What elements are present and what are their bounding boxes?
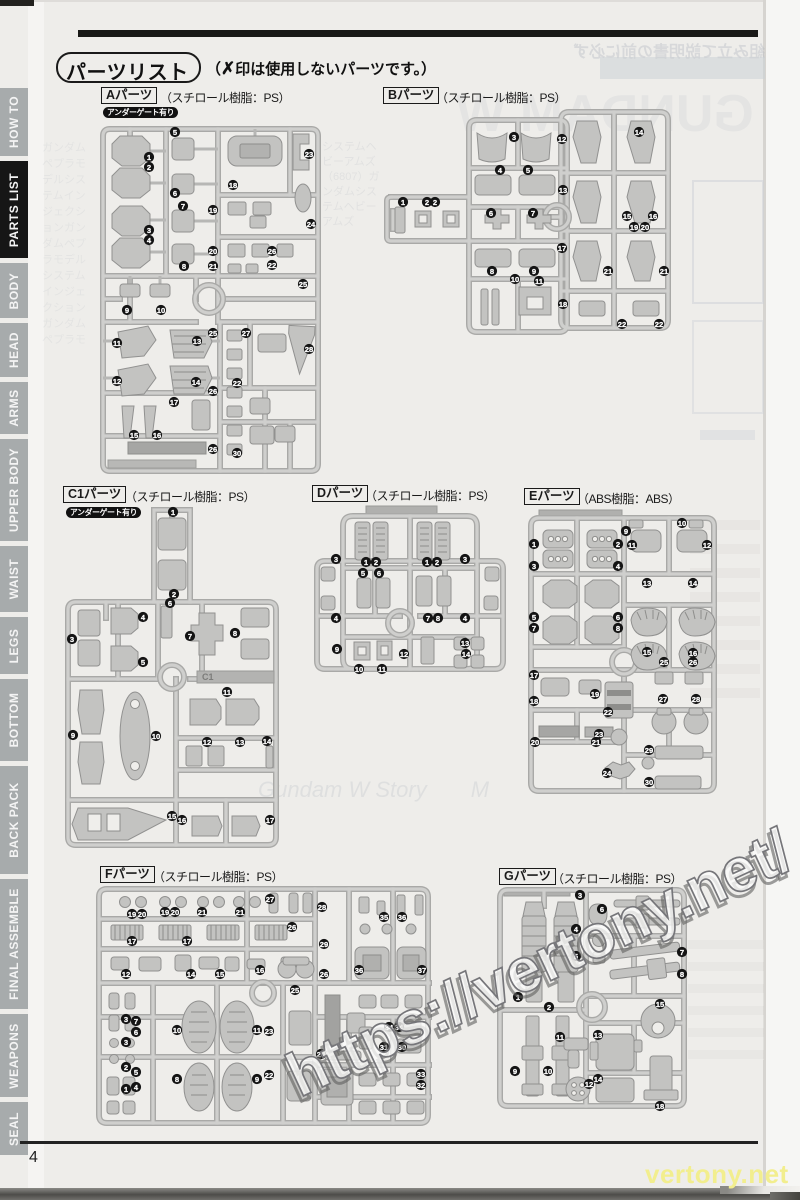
svg-text:21: 21 — [592, 738, 601, 747]
svg-text:32: 32 — [417, 1081, 425, 1090]
svg-text:2: 2 — [172, 590, 176, 599]
svg-text:7: 7 — [532, 624, 536, 633]
svg-text:17: 17 — [266, 816, 274, 825]
svg-text:12: 12 — [558, 135, 566, 144]
svg-text:26: 26 — [268, 247, 276, 256]
svg-text:13: 13 — [193, 337, 201, 346]
svg-text:12: 12 — [113, 377, 121, 386]
svg-text:11: 11 — [556, 1033, 565, 1042]
svg-text:26: 26 — [209, 387, 217, 396]
svg-text:24: 24 — [307, 220, 316, 229]
svg-text:6: 6 — [377, 569, 381, 578]
svg-text:9: 9 — [624, 527, 628, 536]
svg-text:11: 11 — [223, 688, 232, 697]
svg-text:11: 11 — [628, 541, 637, 550]
svg-text:26: 26 — [320, 970, 328, 979]
svg-text:6: 6 — [616, 613, 620, 622]
svg-text:19: 19 — [128, 910, 136, 919]
svg-text:15: 15 — [656, 1000, 665, 1009]
svg-text:14: 14 — [263, 737, 272, 746]
svg-text:9: 9 — [125, 306, 129, 315]
svg-text:7: 7 — [531, 209, 535, 218]
svg-text:36: 36 — [355, 966, 363, 975]
svg-text:3: 3 — [532, 562, 536, 571]
svg-text:33: 33 — [417, 1070, 425, 1079]
svg-text:2: 2 — [147, 163, 151, 172]
svg-text:3: 3 — [124, 1015, 128, 1024]
svg-text:21: 21 — [198, 908, 207, 917]
svg-text:16: 16 — [153, 431, 161, 440]
svg-text:16: 16 — [178, 816, 186, 825]
svg-text:8: 8 — [182, 262, 186, 271]
svg-text:6: 6 — [168, 599, 172, 608]
svg-text:2: 2 — [616, 540, 620, 549]
svg-text:31: 31 — [380, 1043, 389, 1052]
svg-text:12: 12 — [400, 650, 408, 659]
svg-text:13: 13 — [236, 738, 244, 747]
svg-text:20: 20 — [138, 910, 146, 919]
svg-text:17: 17 — [558, 244, 566, 253]
svg-text:27: 27 — [659, 695, 667, 704]
svg-text:11: 11 — [535, 277, 544, 286]
svg-text:9: 9 — [255, 1075, 259, 1084]
svg-text:10: 10 — [173, 1026, 181, 1035]
svg-text:14: 14 — [635, 128, 644, 137]
svg-text:3: 3 — [578, 891, 582, 900]
svg-text:3: 3 — [70, 635, 74, 644]
svg-text:30: 30 — [398, 1043, 406, 1052]
svg-text:21: 21 — [660, 267, 669, 276]
svg-text:10: 10 — [157, 306, 165, 315]
svg-text:28: 28 — [305, 345, 313, 354]
svg-text:18: 18 — [229, 181, 237, 190]
svg-text:3: 3 — [124, 1038, 128, 1047]
svg-text:10: 10 — [544, 1067, 552, 1076]
svg-text:20: 20 — [209, 247, 217, 256]
svg-text:20: 20 — [531, 738, 539, 747]
svg-text:26: 26 — [689, 658, 697, 667]
svg-text:20: 20 — [641, 223, 649, 232]
svg-text:7: 7 — [188, 632, 192, 641]
svg-text:16: 16 — [256, 966, 264, 975]
svg-text:28: 28 — [318, 903, 326, 912]
svg-text:10: 10 — [511, 275, 519, 284]
svg-text:24: 24 — [603, 769, 612, 778]
svg-text:8: 8 — [175, 1075, 179, 1084]
svg-text:30: 30 — [233, 449, 241, 458]
svg-text:21: 21 — [209, 262, 218, 271]
svg-text:22: 22 — [655, 320, 663, 329]
svg-text:2: 2 — [547, 1003, 551, 1012]
svg-text:2: 2 — [124, 1063, 128, 1072]
svg-text:23: 23 — [305, 150, 313, 159]
svg-text:17: 17 — [530, 671, 538, 680]
svg-text:13: 13 — [594, 1031, 602, 1040]
svg-text:3: 3 — [463, 555, 467, 564]
svg-text:13: 13 — [461, 639, 469, 648]
svg-text:24: 24 — [317, 1050, 326, 1059]
svg-text:10: 10 — [152, 732, 160, 741]
svg-text:3: 3 — [147, 226, 151, 235]
svg-text:6: 6 — [489, 209, 493, 218]
svg-text:14: 14 — [462, 650, 471, 659]
svg-text:25: 25 — [660, 658, 669, 667]
svg-text:10: 10 — [678, 519, 686, 528]
svg-text:15: 15 — [216, 970, 225, 979]
svg-text:22: 22 — [604, 708, 612, 717]
svg-text:21: 21 — [236, 908, 245, 917]
svg-text:9: 9 — [532, 267, 536, 276]
svg-text:8: 8 — [616, 624, 620, 633]
svg-text:8: 8 — [436, 614, 440, 623]
svg-text:11: 11 — [113, 339, 122, 348]
svg-text:6: 6 — [173, 189, 177, 198]
svg-text:3: 3 — [512, 133, 516, 142]
svg-text:C1: C1 — [202, 672, 214, 682]
svg-text:19: 19 — [591, 690, 599, 699]
svg-text:26: 26 — [288, 923, 296, 932]
svg-text:34: 34 — [385, 1023, 394, 1032]
svg-text:36: 36 — [398, 913, 406, 922]
svg-text:14: 14 — [594, 1075, 603, 1084]
svg-text:9: 9 — [513, 1067, 517, 1076]
svg-text:9: 9 — [335, 645, 339, 654]
svg-text:7: 7 — [680, 948, 684, 957]
svg-text:25: 25 — [209, 329, 218, 338]
svg-text:12: 12 — [122, 970, 130, 979]
svg-text:22: 22 — [618, 320, 626, 329]
svg-text:18: 18 — [559, 300, 567, 309]
svg-text:15: 15 — [643, 648, 652, 657]
svg-text:27: 27 — [266, 895, 274, 904]
svg-text:28: 28 — [692, 695, 700, 704]
svg-text:18: 18 — [656, 1102, 664, 1111]
svg-text:8: 8 — [680, 970, 684, 979]
svg-text:8: 8 — [490, 267, 494, 276]
svg-text:12: 12 — [703, 541, 711, 550]
svg-text:14: 14 — [187, 970, 196, 979]
svg-text:7: 7 — [134, 1017, 138, 1026]
svg-text:16: 16 — [689, 649, 697, 658]
svg-text:37: 37 — [418, 966, 426, 975]
svg-text:15: 15 — [168, 812, 177, 821]
svg-text:14: 14 — [192, 378, 201, 387]
svg-text:19: 19 — [161, 908, 169, 917]
svg-text:13: 13 — [643, 579, 651, 588]
svg-text:9: 9 — [71, 731, 75, 740]
svg-text:2: 2 — [433, 198, 437, 207]
svg-text:2: 2 — [425, 198, 429, 207]
svg-text:12: 12 — [585, 1080, 593, 1089]
svg-text:2: 2 — [435, 558, 439, 567]
svg-text:29: 29 — [645, 746, 653, 755]
svg-text:18: 18 — [530, 697, 538, 706]
svg-text:20: 20 — [171, 908, 179, 917]
svg-text:25: 25 — [291, 986, 300, 995]
svg-text:30: 30 — [645, 778, 653, 787]
svg-text:22: 22 — [268, 261, 276, 270]
svg-text:7: 7 — [426, 614, 430, 623]
svg-text:17: 17 — [170, 398, 178, 407]
svg-text:7: 7 — [181, 202, 185, 211]
svg-text:19: 19 — [209, 206, 217, 215]
svg-text:10: 10 — [355, 665, 363, 674]
svg-text:23: 23 — [265, 1027, 273, 1036]
svg-text:6: 6 — [134, 1028, 138, 1037]
svg-text:27: 27 — [242, 329, 250, 338]
svg-text:6: 6 — [600, 905, 604, 914]
svg-text:8: 8 — [233, 629, 237, 638]
svg-text:35: 35 — [380, 913, 389, 922]
svg-text:29: 29 — [320, 940, 328, 949]
svg-text:12: 12 — [203, 738, 211, 747]
svg-text:13: 13 — [559, 186, 567, 195]
svg-text:11: 11 — [253, 1026, 262, 1035]
svg-text:11: 11 — [378, 665, 387, 674]
svg-text:19: 19 — [630, 223, 638, 232]
svg-text:22: 22 — [233, 379, 241, 388]
svg-text:14: 14 — [689, 579, 698, 588]
svg-text:17: 17 — [128, 937, 136, 946]
svg-text:3: 3 — [334, 555, 338, 564]
svg-text:2: 2 — [374, 558, 378, 567]
svg-text:34: 34 — [395, 1023, 404, 1032]
svg-text:26: 26 — [209, 445, 217, 454]
svg-text:17: 17 — [183, 937, 191, 946]
svg-text:25: 25 — [299, 280, 308, 289]
svg-text:22: 22 — [265, 1071, 273, 1080]
svg-text:15: 15 — [623, 212, 632, 221]
svg-text:21: 21 — [604, 267, 613, 276]
svg-text:15: 15 — [130, 431, 139, 440]
svg-text:16: 16 — [649, 212, 657, 221]
